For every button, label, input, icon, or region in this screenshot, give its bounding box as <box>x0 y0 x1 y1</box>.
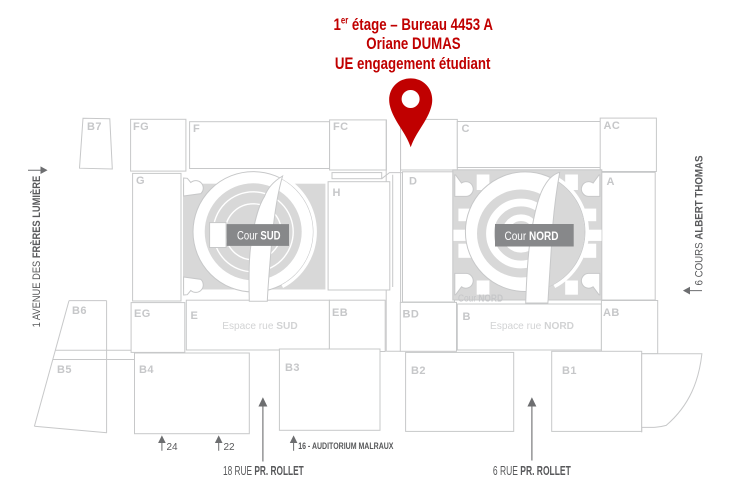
svg-text:FG: FG <box>133 121 149 133</box>
svg-text:16 - AUDITORIUM MALRAUX: 16 - AUDITORIUM MALRAUX <box>298 441 393 451</box>
svg-text:6 RUE PR. ROLLET: 6 RUE PR. ROLLET <box>493 463 571 478</box>
svg-text:A: A <box>607 176 615 188</box>
svg-text:B2: B2 <box>411 365 426 377</box>
svg-text:Cour NORD: Cour NORD <box>458 294 503 305</box>
svg-text:AC: AC <box>604 120 621 132</box>
svg-text:24: 24 <box>167 442 179 453</box>
svg-text:1 AVENUE DES FRÈRES LUMIÈRE: 1 AVENUE DES FRÈRES LUMIÈRE <box>30 176 43 328</box>
svg-text:B: B <box>463 311 471 323</box>
svg-text:H: H <box>333 187 341 199</box>
svg-text:C: C <box>462 123 470 135</box>
svg-text:B3: B3 <box>285 362 300 374</box>
svg-text:B1: B1 <box>562 365 577 377</box>
svg-text:18 RUE PR. ROLLET: 18 RUE PR. ROLLET <box>223 463 304 478</box>
svg-text:B5: B5 <box>57 364 72 376</box>
svg-text:6 COURS ALBERT THOMAS: 6 COURS ALBERT THOMAS <box>694 156 706 286</box>
svg-text:D: D <box>409 176 417 188</box>
svg-text:F: F <box>193 123 200 135</box>
svg-text:B6: B6 <box>72 305 87 317</box>
svg-text:EG: EG <box>134 308 151 320</box>
svg-text:EB: EB <box>332 307 348 319</box>
svg-text:Cour SUD: Cour SUD <box>237 228 281 242</box>
svg-text:AB: AB <box>603 307 620 319</box>
svg-text:Espace rue NORD: Espace rue NORD <box>490 320 574 332</box>
svg-text:E: E <box>191 310 199 322</box>
svg-text:Espace rue SUD: Espace rue SUD <box>222 320 298 332</box>
svg-text:B7: B7 <box>87 121 102 133</box>
svg-text:Cour NORD: Cour NORD <box>505 229 559 243</box>
svg-text:FC: FC <box>333 121 348 133</box>
svg-text:22: 22 <box>224 442 236 453</box>
svg-text:BD: BD <box>403 309 420 321</box>
svg-text:G: G <box>136 175 145 187</box>
svg-text:B4: B4 <box>139 364 154 376</box>
